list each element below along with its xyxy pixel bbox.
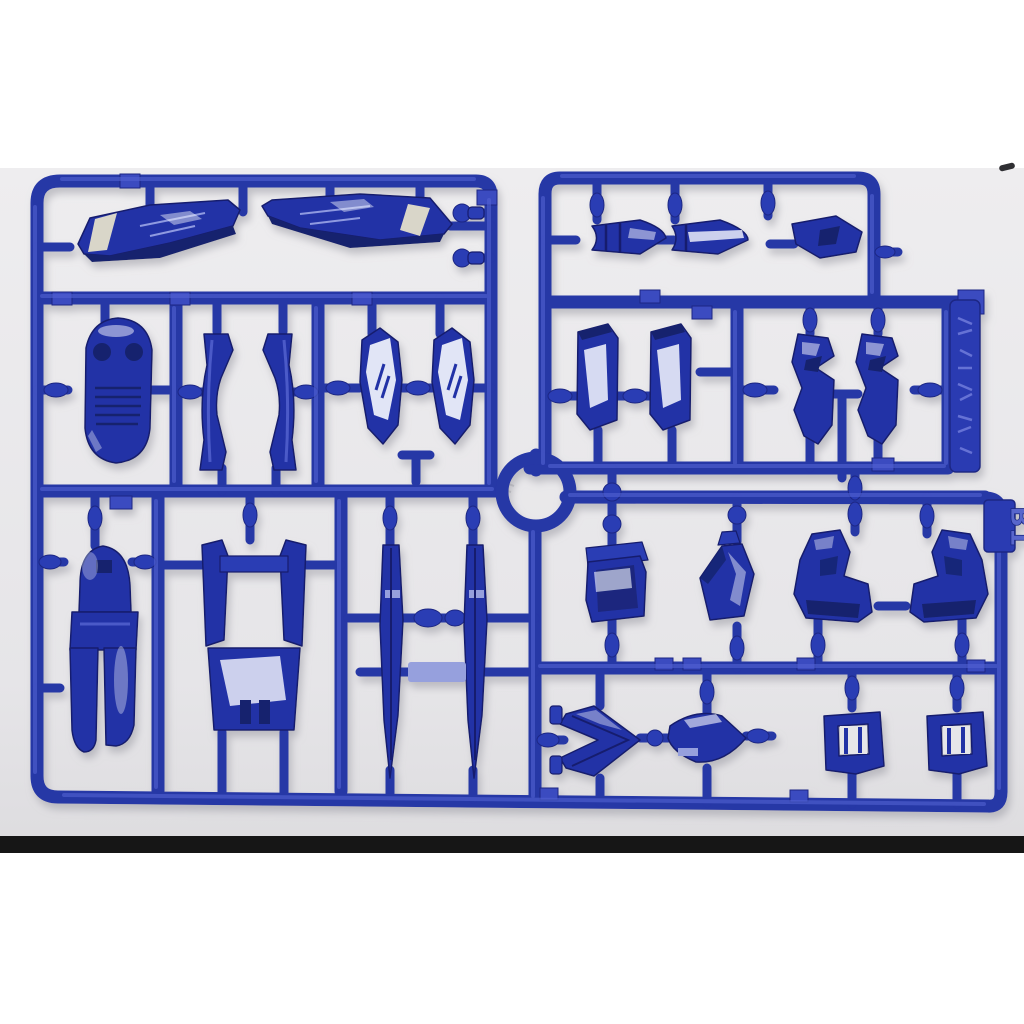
sprue-photo: B1	[0, 0, 1024, 1024]
blade-spacer-plate	[408, 662, 466, 682]
embossed-text-tab	[950, 300, 980, 472]
shoulder-plate-right	[650, 324, 691, 430]
hip-box	[586, 542, 648, 622]
runner-code-marking: B1	[1004, 506, 1024, 547]
cockpit-hatch	[85, 318, 152, 463]
shoulder-plate-left	[577, 324, 618, 430]
bracket-frame-left	[824, 712, 884, 774]
runner-code-pad: B1	[984, 500, 1024, 552]
photo-bottom-strip	[0, 836, 1024, 853]
bracket-frame-right	[927, 712, 987, 774]
photo-page: B1	[0, 0, 1024, 1024]
